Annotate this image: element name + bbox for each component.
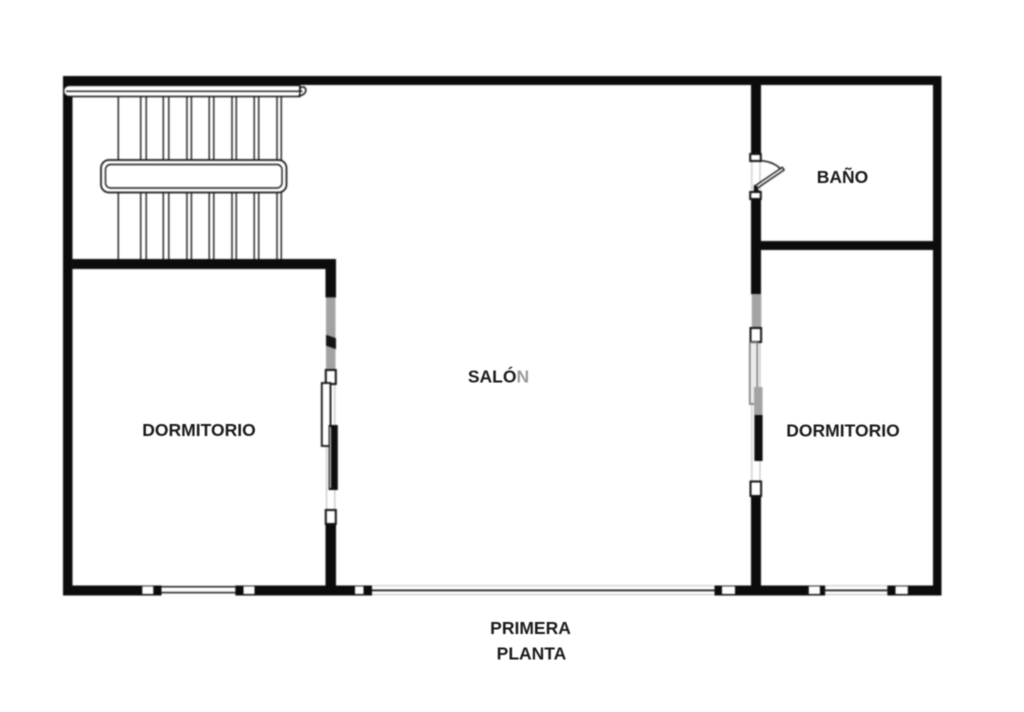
svg-text:PLANTA: PLANTA <box>497 644 567 664</box>
svg-text:BAÑO: BAÑO <box>817 166 869 187</box>
svg-text:DORMITORIO: DORMITORIO <box>786 421 899 441</box>
svg-text:DORMITORIO: DORMITORIO <box>142 420 255 440</box>
svg-text:PRIMERA: PRIMERA <box>490 618 571 638</box>
svg-text:SALÓN: SALÓN <box>468 366 529 387</box>
